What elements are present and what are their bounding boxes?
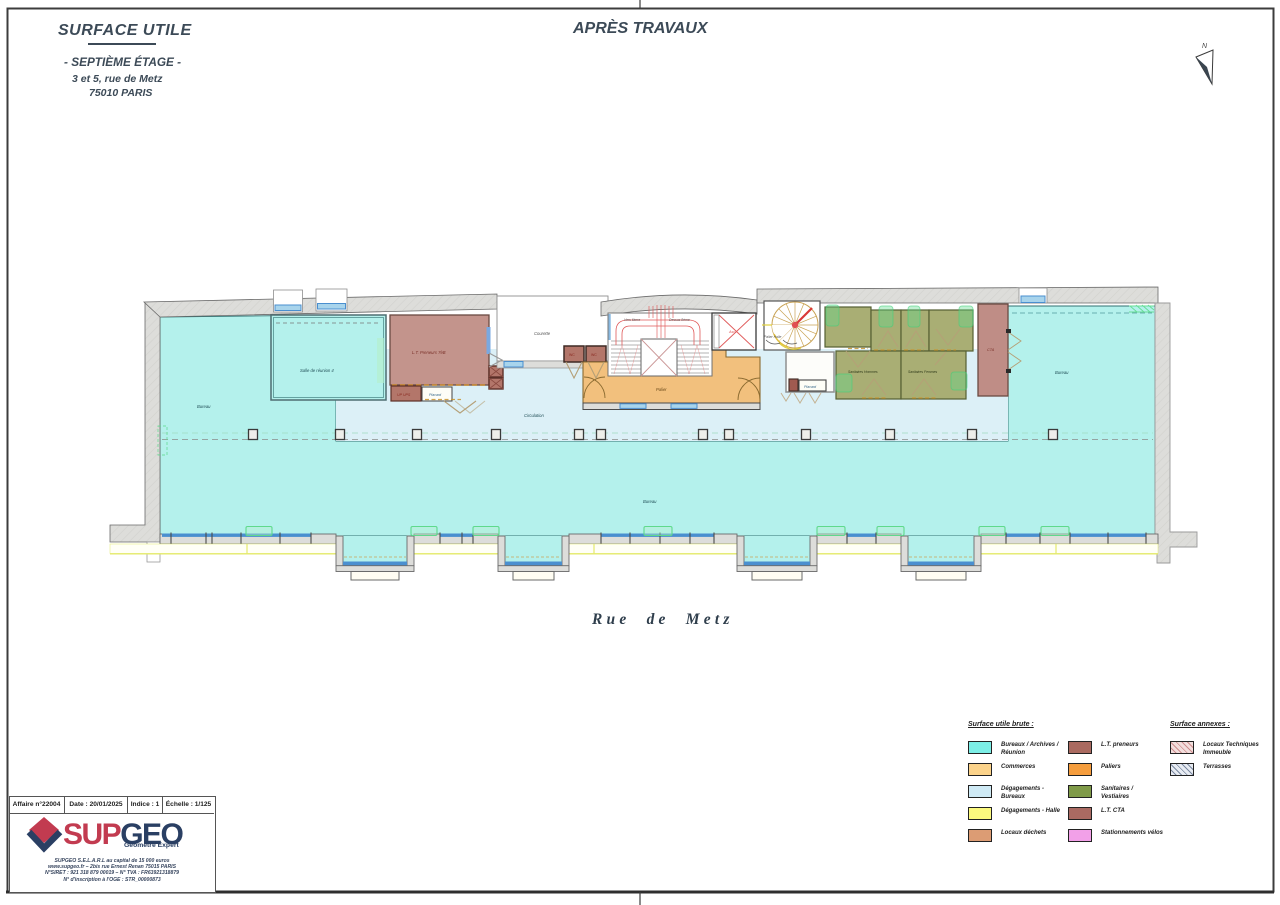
svg-text:Placard: Placard [804, 385, 817, 389]
svg-text:Bureau: Bureau [1055, 370, 1069, 375]
svg-text:UP UPS: UP UPS [397, 393, 411, 397]
svg-text:Palier Halle: Palier Halle [764, 335, 781, 339]
svg-text:L.T. Preneurs 7èB: L.T. Preneurs 7èB [412, 350, 446, 355]
svg-text:Vers 6ème: Vers 6ème [624, 318, 640, 322]
svg-text:Placard: Placard [429, 393, 442, 397]
svg-text:Courette: Courette [534, 331, 551, 336]
svg-text:WC: WC [591, 353, 597, 357]
svg-text:Salle de réunion 4: Salle de réunion 4 [300, 368, 334, 373]
svg-text:Asc.: Asc. [728, 330, 736, 334]
svg-text:Bureau: Bureau [197, 404, 211, 409]
svg-text:Dessus 8ème: Dessus 8ème [669, 318, 690, 322]
svg-text:Bureau: Bureau [643, 499, 657, 504]
svg-text:Sanitaires Hommes: Sanitaires Hommes [848, 370, 878, 374]
svg-text:WC: WC [569, 353, 575, 357]
svg-text:Sanitaires Femmes: Sanitaires Femmes [908, 370, 938, 374]
svg-text:CTA: CTA [987, 348, 995, 352]
svg-text:Palier: Palier [656, 387, 667, 392]
svg-text:Circulation: Circulation [524, 413, 544, 418]
